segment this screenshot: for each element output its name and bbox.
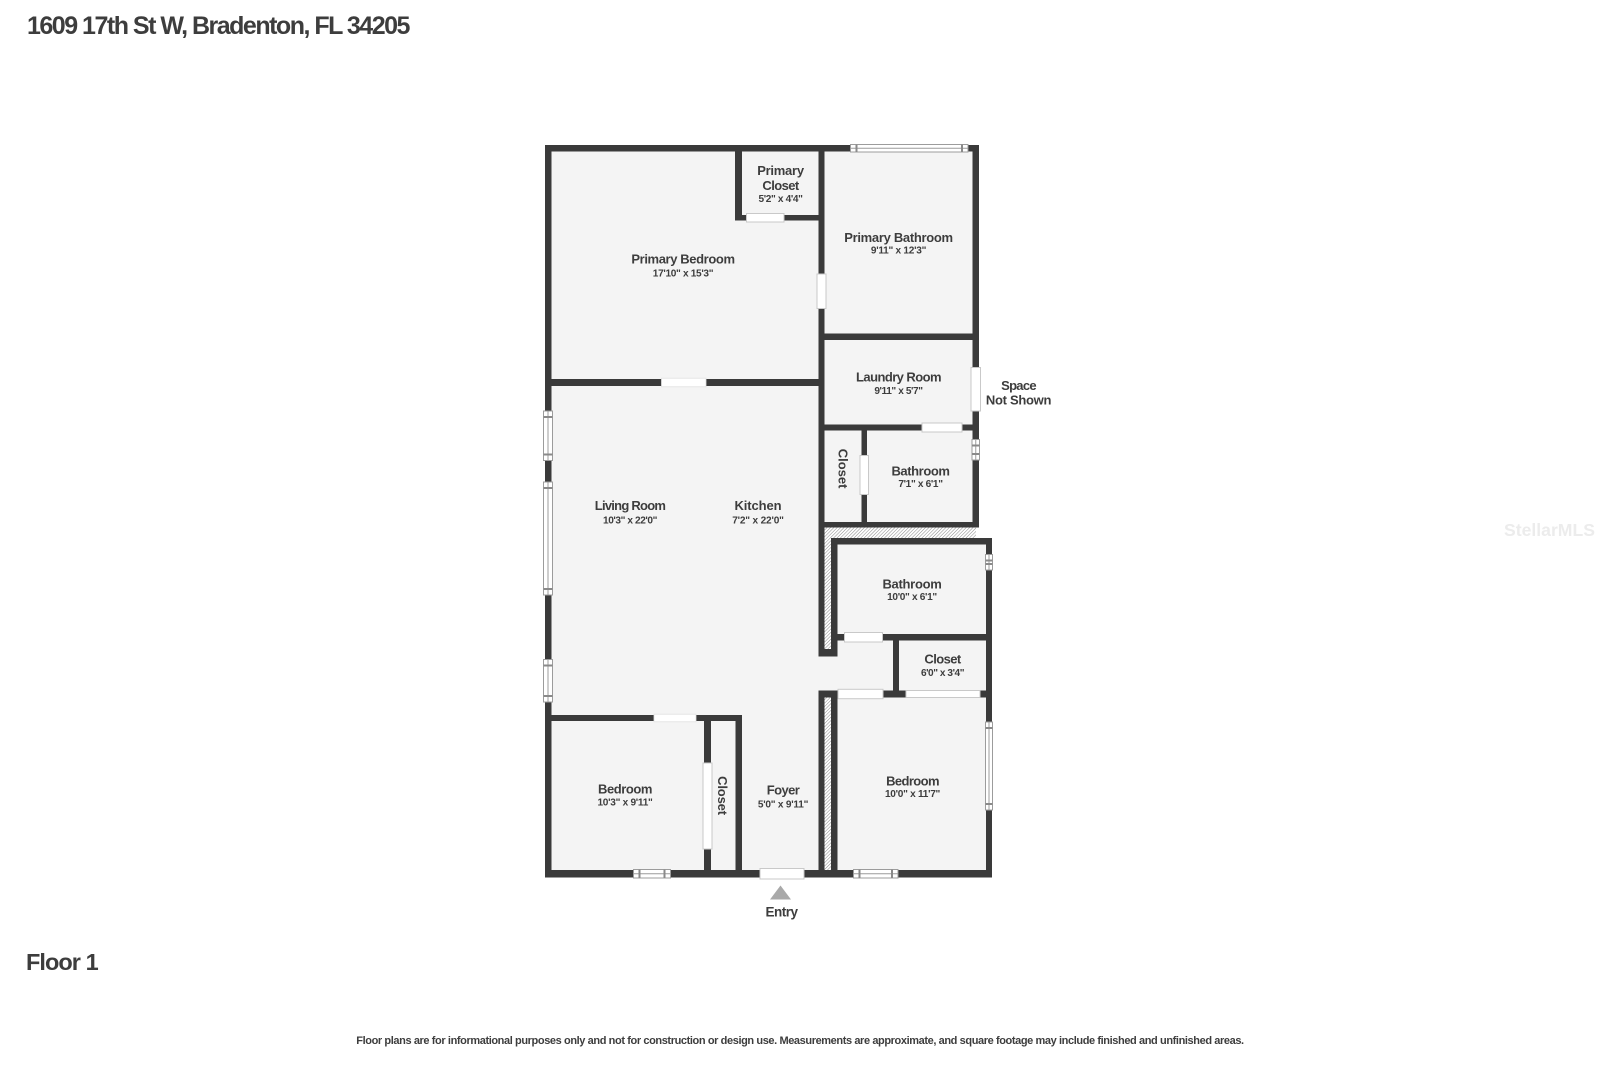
svg-text:Bathroom: Bathroom <box>882 577 941 592</box>
svg-text:Closet: Closet <box>762 178 799 193</box>
svg-text:Living Room: Living Room <box>595 498 666 513</box>
svg-text:Kitchen: Kitchen <box>735 498 782 513</box>
svg-text:5'0" x 9'11": 5'0" x 9'11" <box>758 800 809 811</box>
svg-text:6'0" x 3'4": 6'0" x 3'4" <box>921 668 965 679</box>
svg-text:Bedroom: Bedroom <box>886 774 939 789</box>
svg-text:Closet: Closet <box>836 449 851 489</box>
svg-text:Closet: Closet <box>715 776 730 816</box>
svg-text:Primary Bedroom: Primary Bedroom <box>631 252 734 267</box>
svg-text:10'3" x 9'11": 10'3" x 9'11" <box>597 798 653 809</box>
svg-text:7'1" x 6'1": 7'1" x 6'1" <box>898 479 943 490</box>
svg-text:9'11" x 5'7": 9'11" x 5'7" <box>874 386 923 397</box>
svg-text:10'0" x 6'1": 10'0" x 6'1" <box>887 592 937 603</box>
svg-text:10'0" x 11'7": 10'0" x 11'7" <box>885 789 941 800</box>
svg-text:5'2" x 4'4": 5'2" x 4'4" <box>758 194 803 205</box>
svg-text:Not Shown: Not Shown <box>986 393 1052 408</box>
svg-text:10'3" x 22'0": 10'3" x 22'0" <box>603 516 658 527</box>
svg-text:Closet: Closet <box>924 652 961 667</box>
svg-text:17'10" x 15'3": 17'10" x 15'3" <box>653 269 714 280</box>
svg-text:Bedroom: Bedroom <box>598 782 652 797</box>
svg-text:Bathroom: Bathroom <box>891 464 949 479</box>
svg-text:Laundry Room: Laundry Room <box>856 370 941 385</box>
svg-text:Primary: Primary <box>757 163 805 178</box>
svg-text:Space: Space <box>1001 378 1036 393</box>
svg-text:Foyer: Foyer <box>767 783 800 798</box>
svg-text:Entry: Entry <box>766 905 799 920</box>
svg-text:7'2" x 22'0": 7'2" x 22'0" <box>732 516 784 527</box>
svg-text:Primary Bathroom: Primary Bathroom <box>844 230 952 245</box>
svg-text:9'11" x 12'3": 9'11" x 12'3" <box>871 246 927 257</box>
